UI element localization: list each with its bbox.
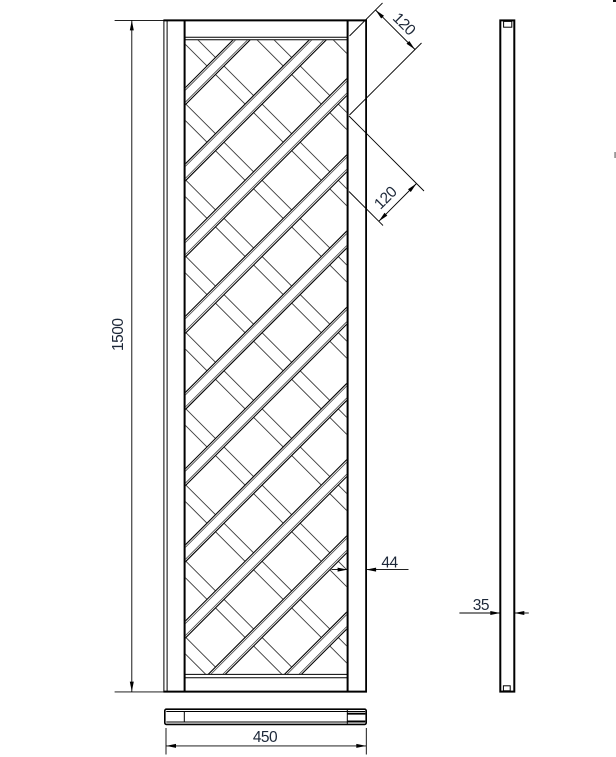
svg-text:35: 35 (473, 597, 489, 614)
svg-text:450: 450 (253, 729, 278, 746)
svg-text:1500: 1500 (110, 318, 127, 351)
svg-text:44: 44 (381, 554, 398, 571)
